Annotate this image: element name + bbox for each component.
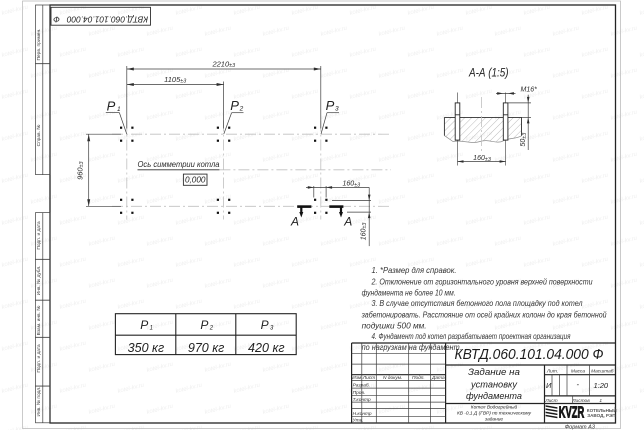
svg-text:фундамента не более 10 мм.: фундамента не более 10 мм. bbox=[362, 288, 456, 297]
svg-text:160±3: 160±3 bbox=[360, 223, 368, 241]
svg-text:N докум.: N докум. bbox=[383, 375, 402, 381]
svg-text:2. Отклонение от горизонтально: 2. Отклонение от горизонтального уровня … bbox=[371, 277, 593, 286]
svg-text:Масштаб: Масштаб bbox=[591, 369, 614, 375]
svg-text:970 кг: 970 кг bbox=[188, 341, 225, 355]
svg-text:Инв. № подл.: Инв. № подл. bbox=[36, 387, 42, 417]
svg-text:Р: Р bbox=[107, 99, 116, 114]
svg-text:Котел Водогрейный: Котел Водогрейный bbox=[471, 404, 518, 411]
svg-text:1. *Размер для справок.: 1. *Размер для справок. bbox=[372, 266, 457, 275]
svg-text:4. Фундамент под котел разраба: 4. Фундамент под котел разрабатывает про… bbox=[372, 332, 572, 341]
svg-text:Утв.: Утв. bbox=[353, 417, 364, 423]
svg-text:подушки 500 мм.: подушки 500 мм. bbox=[362, 321, 427, 330]
svg-text:Р: Р bbox=[261, 318, 269, 332]
svg-text:3: 3 bbox=[335, 106, 339, 113]
svg-text:КВТД.060.101.04.000 Ф: КВТД.060.101.04.000 Ф bbox=[455, 347, 604, 363]
svg-text:А-А (1:5): А-А (1:5) bbox=[468, 68, 509, 80]
svg-text:Р: Р bbox=[326, 98, 335, 113]
svg-text:А: А bbox=[343, 215, 352, 229]
svg-text:Р: Р bbox=[230, 98, 239, 113]
svg-text:1: 1 bbox=[150, 326, 153, 332]
svg-text:Взам. инв. №: Взам. инв. № bbox=[36, 306, 42, 336]
svg-text:Подп. и дата: Подп. и дата bbox=[36, 221, 42, 250]
svg-text:Перв. примен.: Перв. примен. bbox=[36, 29, 42, 61]
svg-text:350 кг: 350 кг bbox=[128, 341, 165, 355]
svg-text:Р: Р bbox=[200, 318, 208, 332]
svg-text:установку: установку bbox=[470, 380, 518, 391]
svg-text:3. В случае отсутствия бетонно: 3. В случае отсутствия бетонного пола пл… bbox=[372, 299, 584, 308]
svg-text:Т.контр: Т.контр bbox=[353, 397, 371, 403]
svg-text:160±3: 160±3 bbox=[473, 155, 491, 163]
svg-text:Н.контр: Н.контр bbox=[353, 411, 372, 417]
svg-text:Масса: Масса bbox=[571, 369, 586, 375]
svg-text:А: А bbox=[290, 215, 299, 229]
svg-text:Лит.: Лит. bbox=[546, 369, 558, 375]
svg-text:Формат А3: Формат А3 bbox=[565, 425, 596, 430]
svg-text:Дата: Дата bbox=[431, 375, 445, 381]
svg-text:задание: задание bbox=[484, 416, 503, 422]
svg-text:Разраб.: Разраб. bbox=[353, 383, 370, 389]
svg-text:1:20: 1:20 bbox=[594, 381, 609, 390]
svg-text:420 кг: 420 кг bbox=[248, 341, 285, 355]
svg-text:Изм.: Изм. bbox=[352, 375, 362, 381]
svg-text:М16*: М16* bbox=[521, 87, 538, 94]
svg-text:Р: Р bbox=[140, 318, 148, 332]
svg-text:забетонировать. Расстояние от: забетонировать. Расстояние от осей крайн… bbox=[361, 310, 607, 319]
svg-text:Пров.: Пров. bbox=[353, 390, 366, 396]
svg-text:Подп. и дата: Подп. и дата bbox=[36, 344, 42, 373]
svg-text:KVZR: KVZR bbox=[559, 405, 585, 422]
svg-text:2: 2 bbox=[239, 106, 244, 113]
svg-text:Справ. №: Справ. № bbox=[36, 125, 42, 147]
svg-text:Инв. № дубл.: Инв. № дубл. bbox=[36, 266, 42, 296]
svg-text:КВ -0,1 Д (ГВР) по техническом: КВ -0,1 Д (ГВР) по техническому bbox=[457, 410, 532, 416]
svg-text:КОТЕЛЬНЫЙ: КОТЕЛЬНЫЙ bbox=[587, 406, 617, 413]
svg-text:Листов: Листов bbox=[571, 398, 590, 404]
svg-text:Ось симметрии котла: Ось симметрии котла bbox=[138, 160, 221, 169]
svg-text:1: 1 bbox=[599, 398, 602, 404]
svg-text:0,000: 0,000 bbox=[185, 176, 206, 185]
svg-text:Задание на: Задание на bbox=[468, 367, 520, 378]
svg-text:2: 2 bbox=[209, 326, 214, 332]
svg-text:фундамента: фундамента bbox=[466, 391, 522, 402]
svg-text:ЗАВОД, РЭП: ЗАВОД, РЭП bbox=[587, 413, 615, 418]
svg-text:Подп.: Подп. bbox=[412, 375, 425, 381]
svg-text:И: И bbox=[546, 381, 552, 390]
svg-text:КВТД.060.101.04.000 Ф: КВТД.060.101.04.000 Ф bbox=[53, 14, 148, 24]
svg-text:Лист: Лист bbox=[544, 398, 557, 404]
svg-text:50±3: 50±3 bbox=[520, 133, 528, 147]
svg-text:160±3: 160±3 bbox=[343, 181, 361, 189]
svg-text:1: 1 bbox=[117, 106, 121, 113]
svg-text:Лист: Лист bbox=[362, 375, 375, 381]
